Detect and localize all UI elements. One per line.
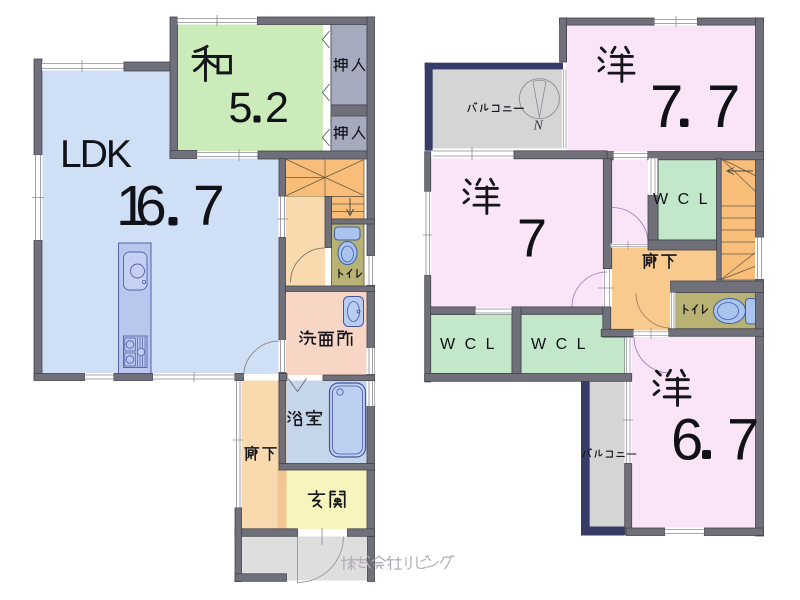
svg-text:7: 7	[517, 209, 547, 269]
svg-text:7: 7	[193, 174, 225, 238]
svg-text:LDK: LDK	[60, 133, 132, 176]
svg-text:5: 5	[229, 84, 253, 132]
svg-text:WCL: WCL	[440, 336, 504, 353]
svg-text:WCL: WCL	[653, 191, 717, 208]
svg-text:6: 6	[135, 174, 167, 238]
svg-text:7: 7	[727, 408, 759, 473]
svg-text:N: N	[533, 119, 544, 134]
svg-text:WCL: WCL	[531, 336, 595, 353]
svg-text:6: 6	[671, 408, 703, 473]
svg-text:7: 7	[650, 73, 683, 140]
svg-text:7: 7	[707, 73, 740, 140]
svg-text:2: 2	[265, 84, 289, 132]
